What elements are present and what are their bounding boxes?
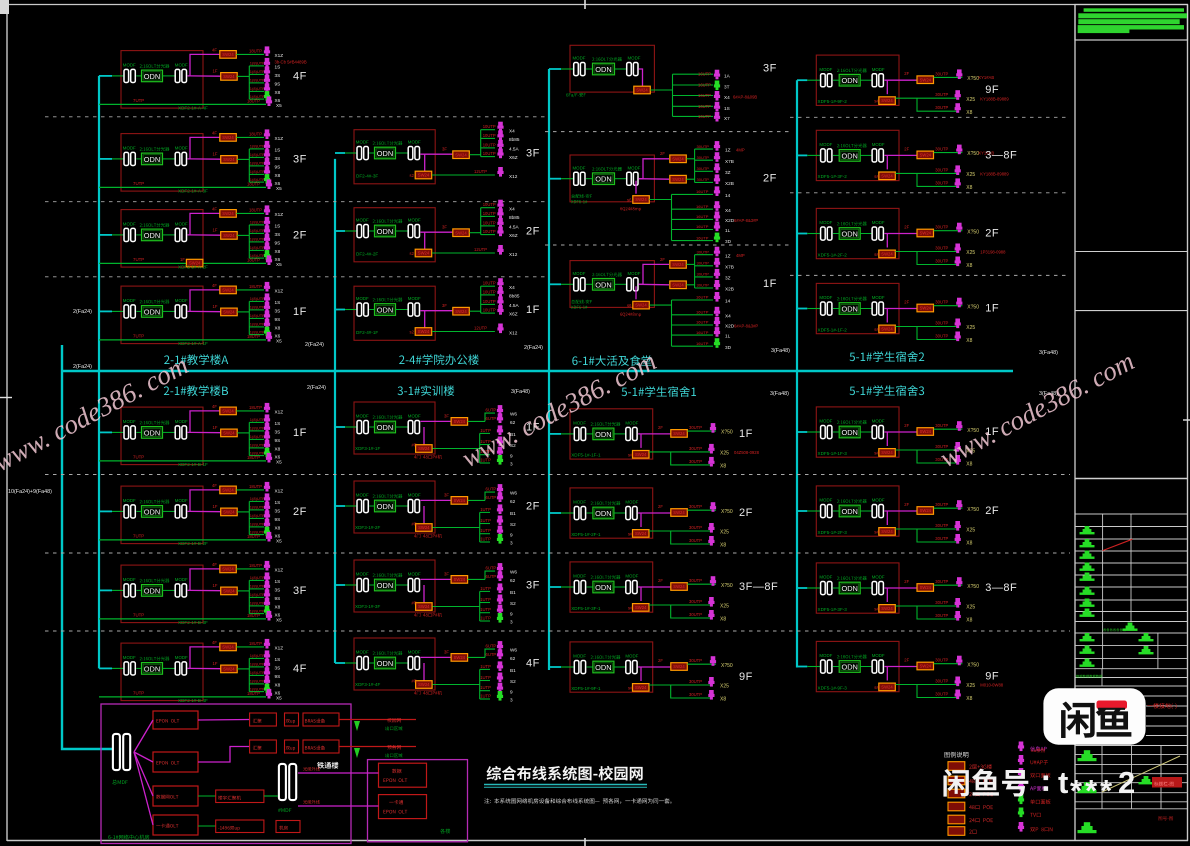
svg-text:8b85: 8b85 (509, 137, 520, 142)
svg-text:2F: 2F (904, 658, 909, 663)
svg-text:2F: 2F (293, 230, 307, 242)
svg-text:30UTP: 30UTP (697, 272, 710, 277)
svg-text:1(8)UTP: 1(8)UTP (250, 152, 265, 157)
svg-text:30UTP: 30UTP (689, 658, 702, 663)
svg-text:X25: X25 (720, 684, 729, 690)
svg-text:10(Fa24)+9(Fa48): 10(Fa24)+9(Fa48) (8, 489, 52, 495)
svg-text:2: 2 (1118, 765, 1135, 800)
svg-text:X1Z: X1Z (275, 136, 284, 141)
svg-text:SW24: SW24 (672, 156, 684, 161)
svg-text:X1Z: X1Z (275, 53, 284, 58)
svg-text:MODF: MODF (872, 653, 885, 658)
svg-text:1S: 1S (275, 421, 281, 426)
svg-text:XDF2-1#-B-4F: XDF2-1#-B-4F (178, 698, 208, 703)
svg-text:X1Z: X1Z (275, 289, 284, 294)
svg-text:9F: 9F (985, 84, 999, 96)
svg-text:XDF5-1#-9F-2: XDF5-1#-9F-2 (818, 99, 848, 104)
svg-text:SW24: SW24 (455, 230, 467, 235)
svg-text:MODF: MODF (573, 56, 586, 61)
svg-text:16UTP: 16UTP (696, 189, 709, 194)
svg-text:MODF: MODF (628, 271, 641, 276)
svg-text:MODF: MODF (872, 575, 885, 580)
svg-text:s2: s2 (410, 251, 415, 256)
svg-text:ODN: ODN (841, 151, 857, 160)
svg-text:SW24: SW24 (222, 288, 234, 293)
svg-text:X8: X8 (966, 185, 972, 191)
svg-text:MODF: MODF (872, 419, 885, 424)
svg-text:SW24: SW24 (672, 282, 684, 287)
svg-text:XDF5-1#-1F-1: XDF5-1#-1F-1 (571, 453, 601, 458)
svg-text:4F: 4F (212, 283, 217, 288)
svg-text:X8: X8 (966, 618, 972, 624)
svg-text:30UTP: 30UTP (935, 613, 948, 618)
svg-text:7UTP: 7UTP (133, 691, 144, 696)
svg-text:XDF3-1#-2F: XDF3-1#-2F (355, 525, 380, 530)
svg-text:X?50: X?50 (967, 507, 979, 513)
svg-text:30UTP: 30UTP (689, 525, 702, 530)
svg-text:18UTP: 18UTP (247, 691, 260, 696)
svg-text:2F: 2F (293, 506, 307, 518)
svg-text:30UTP: 30UTP (689, 692, 702, 697)
svg-text:18UTP: 18UTP (249, 284, 262, 289)
svg-text:XDF5-1#-1F-3: XDF5-1#-1F-3 (818, 451, 848, 456)
svg-text:#F: #F (412, 679, 417, 684)
svg-text:s#: s# (874, 685, 879, 690)
svg-text:10UTP: 10UTP (483, 289, 496, 294)
svg-text:3Z: 3Z (725, 276, 731, 281)
svg-text:X1Z: X1Z (275, 410, 284, 415)
svg-text:SW24: SW24 (222, 567, 234, 572)
svg-text:SW24: SW24 (223, 667, 235, 672)
svg-text:1L: 1L (725, 334, 731, 339)
svg-text:30UTP: 30UTP (935, 658, 948, 663)
svg-text:MODF: MODF (872, 498, 885, 503)
svg-text:MODF: MODF (356, 218, 369, 223)
svg-text:30UTP: 30UTP (697, 249, 710, 254)
svg-text:SW24: SW24 (222, 409, 234, 414)
svg-text:4F: 4F (212, 47, 217, 52)
svg-text:X8: X8 (275, 683, 281, 688)
svg-text:7UTP: 7UTP (133, 455, 144, 460)
svg-text:1F: 1F (526, 304, 540, 316)
svg-text:1(8)UTP: 1(8)UTP (250, 228, 265, 233)
svg-text:X5: X5 (276, 460, 282, 465)
svg-text:3S: 3S (275, 232, 281, 237)
svg-text:X25: X25 (966, 172, 975, 178)
svg-text:1(8)UTP: 1(8)UTP (250, 296, 265, 301)
svg-text:SW24: SW24 (418, 682, 430, 687)
svg-text:X8: X8 (966, 541, 972, 547)
svg-text:ODN: ODN (841, 230, 857, 239)
svg-text:4MP: 4MP (736, 253, 745, 258)
svg-text:30UTP: 30UTP (935, 334, 948, 339)
svg-text:1F: 1F (213, 583, 218, 588)
svg-text:30UTP: 30UTP (935, 679, 948, 684)
svg-text:30UTP: 30UTP (689, 578, 702, 583)
svg-text:MODF: MODF (175, 146, 188, 151)
svg-text:SW24: SW24 (223, 589, 235, 594)
svg-text:2F: 2F (763, 172, 777, 184)
svg-text:W6: W6 (510, 570, 517, 575)
svg-text:10UTP: 10UTP (483, 308, 496, 313)
svg-text:4F: 4F (293, 663, 307, 675)
svg-text:1S: 1S (275, 657, 281, 662)
svg-text:M010-0W88: M010-0W88 (980, 683, 1003, 688)
svg-text:6UTP: 6UTP (486, 566, 497, 571)
svg-text:1S: 1S (275, 500, 281, 505)
svg-text:7UTP: 7UTP (133, 98, 144, 103)
svg-text:3(Fa48): 3(Fa48) (771, 348, 790, 354)
svg-text:MODF: MODF (628, 165, 641, 170)
svg-text:X1Z: X1Z (275, 212, 284, 217)
svg-text:SW24: SW24 (635, 531, 647, 536)
svg-text:16UTP: 16UTP (696, 310, 709, 315)
svg-text:3F: 3F (293, 154, 307, 166)
svg-text:1(8)UTP: 1(8)UTP (250, 662, 265, 667)
svg-text:ODN: ODN (841, 507, 857, 516)
svg-text:W6: W6 (510, 648, 517, 653)
svg-text:X25: X25 (966, 97, 975, 103)
svg-text:1UTP: 1UTP (480, 675, 491, 680)
svg-text:1(8)UTP: 1(8)UTP (250, 496, 265, 501)
svg-text:SW24: SW24 (418, 446, 430, 451)
svg-text:1F: 1F (213, 68, 218, 73)
svg-text:30UTP: 30UTP (935, 105, 948, 110)
svg-text:SW24: SW24 (455, 309, 467, 314)
svg-text:1(8)UTP: 1(8)UTP (250, 575, 265, 580)
svg-text:2F: 2F (904, 146, 909, 151)
svg-text:1(8)UTP: 1(8)UTP (250, 78, 265, 83)
svg-text:12UTP: 12UTP (474, 247, 487, 252)
svg-text:6UTP: 6UTP (486, 408, 497, 413)
svg-text:16UTP: 16UTP (698, 93, 711, 98)
svg-text:9S: 9S (275, 165, 281, 170)
svg-text:MODF: MODF (625, 574, 638, 579)
svg-text:1S: 1S (275, 65, 281, 70)
svg-text:3F: 3F (442, 224, 447, 229)
svg-text:4.5A: 4.5A (509, 303, 520, 308)
svg-text:4F: 4F (212, 483, 217, 488)
svg-text:X8: X8 (275, 249, 281, 254)
svg-text:XDF5-1#-2F-3: XDF5-1#-2F-3 (818, 530, 848, 535)
svg-text:MODF: MODF (123, 298, 136, 303)
svg-text:MODF: MODF (175, 419, 188, 424)
svg-text:XDF5-1#-9F-1: XDF5-1#-9F-1 (571, 686, 601, 691)
svg-text:MODF: MODF (819, 419, 832, 424)
svg-text:1UTP: 1UTP (480, 537, 491, 542)
svg-text:9: 9 (510, 689, 513, 694)
svg-text:6UTP: 6UTP (486, 644, 497, 649)
svg-text:18UTP: 18UTP (247, 455, 260, 460)
svg-text:16UTP: 16UTP (696, 341, 709, 346)
svg-text:18UTP: 18UTP (249, 563, 262, 568)
svg-text:X4: X4 (725, 313, 731, 318)
svg-text:1UTP: 1UTP (480, 616, 491, 621)
svg-text:X4: X4 (724, 95, 730, 100)
svg-text:X1Z: X1Z (275, 646, 284, 651)
svg-text:X7: X7 (724, 116, 730, 121)
svg-text:MODF: MODF (408, 650, 421, 655)
svg-text:SW24: SW24 (673, 584, 685, 589)
svg-text:3S: 3S (275, 156, 281, 161)
svg-text:s6: s6 (627, 198, 632, 203)
svg-text:1UTP: 1UTP (480, 694, 491, 699)
svg-text:XDF2-1#-B-1F: XDF2-1#-B-1F (178, 462, 208, 467)
svg-text:3—8F: 3—8F (985, 582, 1017, 594)
svg-text:3: 3 (510, 620, 513, 625)
svg-text:2F: 2F (904, 71, 909, 76)
svg-text:ODN: ODN (377, 149, 393, 158)
svg-text:MODF: MODF (872, 142, 885, 147)
svg-text:MODF: MODF (819, 498, 832, 503)
svg-text:30UTP: 30UTP (935, 92, 948, 97)
svg-text:XDF5-1#-3F-1: XDF5-1#-3F-1 (571, 606, 601, 611)
svg-text:2F: 2F (904, 579, 909, 584)
svg-text:MODF: MODF (819, 220, 832, 225)
svg-text:XDF5-1#-3F-2: XDF5-1#-3F-2 (818, 174, 848, 179)
svg-text:2F: 2F (904, 225, 909, 230)
svg-text:3F: 3F (444, 413, 449, 418)
svg-text:8b85: 8b85 (509, 215, 520, 220)
svg-text:10UTP: 10UTP (483, 151, 496, 156)
svg-text:18UTP: 18UTP (249, 132, 262, 137)
svg-text:XDF2-1#-B-2F: XDF2-1#-B-2F (178, 541, 208, 546)
svg-text:SW24: SW24 (454, 577, 466, 582)
svg-text:7UTP: 7UTP (133, 534, 144, 539)
svg-text:SW24: SW24 (455, 152, 467, 157)
svg-text:MODF: MODF (408, 493, 421, 498)
svg-text:1F: 1F (213, 304, 218, 309)
svg-text:MODF: MODF (175, 498, 188, 503)
svg-text:SW24: SW24 (881, 529, 893, 534)
svg-text:3F: 3F (763, 63, 777, 75)
svg-text:MODF: MODF (408, 572, 421, 577)
svg-text:10UTP: 10UTP (483, 220, 496, 225)
svg-text:1F: 1F (739, 428, 753, 440)
svg-text:SW24: SW24 (920, 77, 932, 82)
svg-text:30UTP: 30UTP (689, 425, 702, 430)
svg-text:SW24: SW24 (635, 303, 647, 308)
svg-text:MODF: MODF (408, 218, 421, 223)
svg-text:X5: X5 (276, 262, 282, 267)
svg-text:1F: 1F (213, 425, 218, 430)
svg-text:30UTP: 30UTP (935, 147, 948, 152)
svg-text:3S: 3S (275, 309, 281, 314)
svg-text:MODF: MODF (573, 271, 586, 276)
svg-text:SW24: SW24 (920, 508, 932, 513)
svg-text:10UTP: 10UTP (483, 142, 496, 147)
svg-text:SW24: SW24 (635, 605, 647, 610)
svg-text:X8: X8 (275, 90, 281, 95)
svg-text:X25: X25 (966, 683, 975, 689)
svg-text:1Z: 1Z (725, 148, 731, 153)
svg-text:SW24: SW24 (881, 327, 893, 332)
svg-text:MODF: MODF (819, 142, 832, 147)
svg-text:X2B: X2B (725, 287, 734, 292)
svg-text:18UTP: 18UTP (247, 98, 260, 103)
svg-text:ODN: ODN (144, 507, 160, 516)
svg-text:3: 3 (510, 698, 513, 703)
svg-text:XDF5-1#-2F-1: XDF5-1#-2F-1 (571, 532, 601, 537)
svg-text:X7B: X7B (725, 159, 734, 164)
svg-text:10UTP: 10UTP (483, 202, 496, 207)
svg-text:1A: 1A (724, 74, 731, 79)
svg-text:XDF5-1#-2F-2: XDF5-1#-2F-2 (818, 252, 848, 257)
svg-text:6#AP-8&3#P: 6#AP-8&3#P (734, 218, 758, 223)
svg-text:2F: 2F (658, 504, 663, 509)
svg-text:ODN: ODN (144, 428, 160, 437)
svg-text:9S: 9S (275, 241, 281, 246)
svg-text:MODF: MODF (175, 63, 188, 68)
svg-text:6UTP: 6UTP (486, 574, 497, 579)
svg-text:1(8)UTP: 1(8)UTP (250, 69, 265, 74)
svg-text:XDF2-1#-A-3F: XDF2-1#-A-3F (178, 189, 208, 194)
svg-text:3D: 3D (725, 239, 732, 244)
svg-text:1Z: 1Z (725, 253, 731, 258)
svg-text:1F: 1F (213, 151, 218, 156)
svg-text:XDF3-1#-3F: XDF3-1#-3F (355, 604, 380, 609)
svg-text:S2: S2 (510, 679, 516, 684)
svg-text:MODF: MODF (356, 493, 369, 498)
svg-text:10UTP: 10UTP (483, 299, 496, 304)
svg-text:18UTP: 18UTP (249, 405, 262, 410)
svg-text:7UTP: 7UTP (133, 257, 144, 262)
svg-text:30UTP: 30UTP (935, 225, 948, 230)
svg-text:ODN: ODN (595, 280, 611, 289)
svg-text:62: 62 (510, 656, 516, 661)
svg-text:2(Fa24): 2(Fa24) (524, 345, 543, 351)
svg-text:1(8)UTP: 1(8)UTP (250, 237, 265, 242)
svg-text:16UTP: 16UTP (696, 330, 709, 335)
svg-text:X5: X5 (276, 696, 282, 701)
svg-text:1S: 1S (275, 224, 281, 229)
svg-text:MODF: MODF (408, 414, 421, 419)
svg-text:2F: 2F (904, 423, 909, 428)
svg-text:3F: 3F (444, 571, 449, 576)
svg-text:X4: X4 (509, 285, 515, 290)
svg-text:9S: 9S (275, 82, 281, 87)
svg-text:SW24: SW24 (672, 177, 684, 182)
svg-text:SW24: SW24 (223, 310, 235, 315)
svg-text:1(8)UTP: 1(8)UTP (250, 443, 265, 448)
svg-text:s#: s# (628, 605, 633, 610)
svg-text:X12: X12 (509, 252, 518, 257)
svg-text:1(8)UTP: 1(8)UTP (250, 161, 265, 166)
svg-text:04Z508-0928: 04Z508-0928 (734, 450, 760, 455)
svg-text:16UTP: 16UTP (698, 114, 711, 119)
svg-text:3T: 3T (724, 85, 730, 90)
svg-text:30UTP: 30UTP (697, 144, 710, 149)
svg-text:ODN: ODN (377, 423, 393, 432)
svg-text:1S: 1S (275, 300, 281, 305)
svg-text:1F: 1F (763, 278, 777, 290)
svg-text:1(8)UTP: 1(8)UTP (250, 245, 265, 250)
svg-text:S2: S2 (510, 601, 516, 606)
svg-text:1F: 1F (213, 227, 218, 232)
svg-text:DF2-4#-2F: DF2-4#-2F (356, 252, 378, 257)
svg-text:30UTP: 30UTP (935, 579, 948, 584)
svg-text:ODN: ODN (841, 428, 857, 437)
svg-text:B1: B1 (510, 668, 516, 673)
svg-text:7UTP: 7UTP (133, 334, 144, 339)
svg-text:1S: 1S (724, 106, 730, 111)
svg-text:9: 9 (510, 611, 513, 616)
svg-text:1F: 1F (293, 427, 307, 439)
svg-text:W6: W6 (510, 491, 517, 496)
svg-text:SW24: SW24 (454, 419, 466, 424)
svg-text:X4: X4 (509, 128, 515, 133)
svg-text:9S: 9S (275, 438, 281, 443)
svg-text:10UTP: 10UTP (483, 211, 496, 216)
svg-text:30UTP: 30UTP (689, 612, 702, 617)
svg-text:3F: 3F (526, 148, 540, 160)
svg-text:SW24: SW24 (673, 510, 685, 515)
svg-text:MODF: MODF (625, 654, 638, 659)
svg-text:1(8)UTP: 1(8)UTP (250, 220, 265, 225)
svg-text:6UTP: 6UTP (486, 487, 497, 492)
svg-text:X25: X25 (966, 325, 975, 331)
svg-text:SW24: SW24 (223, 431, 235, 436)
svg-text:SW24: SW24 (636, 88, 648, 93)
svg-text:ODN: ODN (144, 231, 160, 240)
svg-text:SW24: SW24 (881, 685, 893, 690)
svg-text:3(Fa48): 3(Fa48) (511, 389, 530, 395)
svg-text:X4: X4 (725, 208, 731, 213)
svg-text:2(Fa24): 2(Fa24) (73, 364, 92, 370)
svg-text:4MP: 4MP (736, 148, 745, 153)
svg-text:16UTP: 16UTP (698, 72, 711, 77)
svg-text:s#: s# (628, 452, 633, 457)
svg-text:30UTP: 30UTP (689, 446, 702, 451)
svg-text:9S: 9S (275, 317, 281, 322)
svg-text:MODF: MODF (408, 296, 421, 301)
svg-text:1(8)UTP: 1(8)UTP (250, 169, 265, 174)
svg-text:16UTP: 16UTP (696, 320, 709, 325)
svg-text:2F: 2F (658, 425, 663, 430)
svg-text:30UTP: 30UTP (935, 167, 948, 172)
svg-text:DF2-4#-1F: DF2-4#-1F (356, 330, 378, 335)
svg-text:30UTP: 30UTP (697, 166, 710, 171)
svg-text:10UTP: 10UTP (483, 124, 496, 129)
svg-text:ODN: ODN (377, 227, 393, 236)
svg-text:MODF: MODF (625, 421, 638, 426)
svg-text:2F: 2F (660, 151, 665, 156)
svg-text:3: 3 (510, 541, 513, 546)
svg-text:X6Z: X6Z (509, 155, 518, 160)
svg-text:3S: 3S (275, 666, 281, 671)
svg-text:s#: s# (628, 685, 633, 690)
svg-text:SW24: SW24 (920, 664, 932, 669)
svg-text:SW24: SW24 (673, 664, 685, 669)
svg-text:XDF5-1#-9F-3: XDF5-1#-9F-3 (818, 685, 848, 690)
svg-text:MODF: MODF (356, 650, 369, 655)
svg-text:s6: s6 (627, 303, 632, 308)
svg-text:MODF: MODF (175, 655, 188, 660)
svg-text:t: t (1058, 765, 1068, 800)
svg-text:s#: s# (628, 531, 633, 536)
svg-text:1(8)UTP: 1(8)UTP (250, 61, 265, 66)
svg-text:MODF: MODF (123, 655, 136, 660)
svg-text:X?50: X?50 (721, 509, 733, 515)
svg-text:1S: 1S (275, 148, 281, 153)
svg-text:MODF: MODF (819, 653, 832, 658)
svg-text:X?50: X?50 (721, 430, 733, 436)
svg-text:SW24: SW24 (418, 525, 430, 530)
svg-text:SW24: SW24 (920, 153, 932, 158)
svg-text:DF2-4#-3F: DF2-4#-3F (356, 174, 378, 179)
svg-text:4F: 4F (293, 71, 307, 83)
svg-text:ODN: ODN (595, 65, 611, 74)
